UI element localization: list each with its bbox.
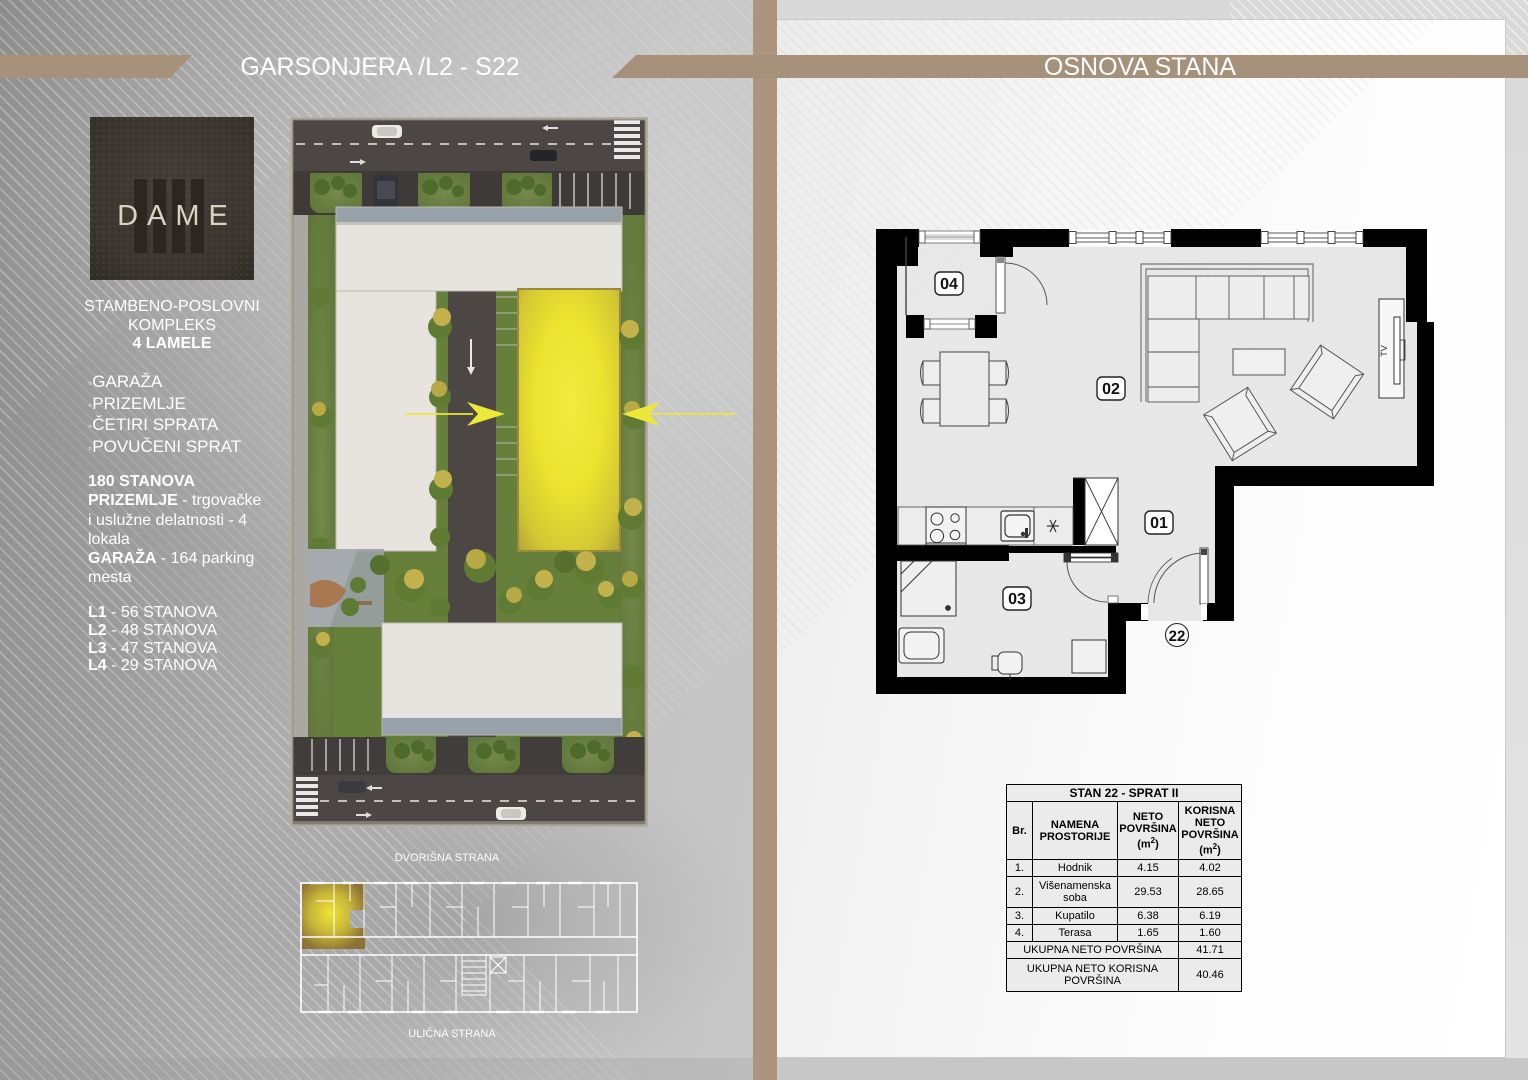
svg-text:DAME: DAME	[117, 200, 237, 232]
svg-text:04: 04	[940, 276, 958, 293]
svg-text:01: 01	[1150, 515, 1168, 532]
svg-text:03: 03	[1008, 591, 1026, 608]
svg-text:02: 02	[1102, 381, 1120, 398]
svg-text:TV: TV	[1379, 345, 1389, 357]
svg-text:22: 22	[1169, 628, 1186, 645]
